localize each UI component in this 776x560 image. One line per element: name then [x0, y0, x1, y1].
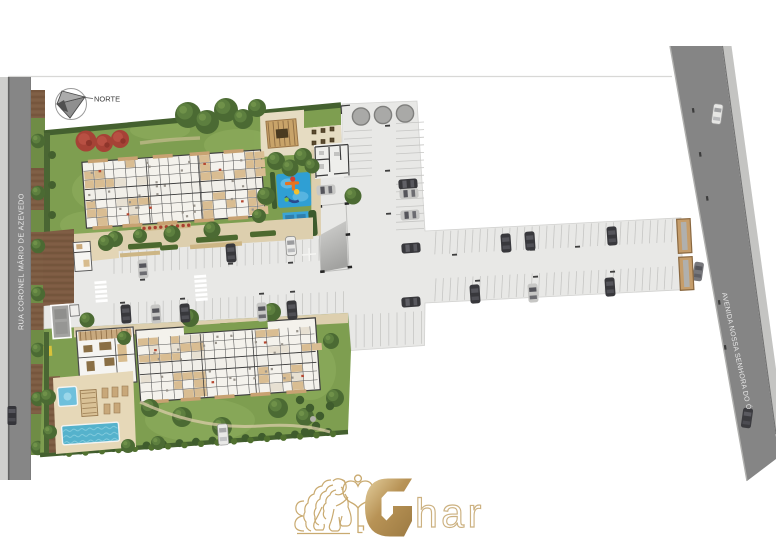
svg-text:RUA CORONEL MÁRIO DE AZEVEDO: RUA CORONEL MÁRIO DE AZEVEDO — [17, 193, 26, 330]
svg-text:har: har — [415, 490, 485, 536]
svg-text:NORTE: NORTE — [94, 95, 120, 104]
